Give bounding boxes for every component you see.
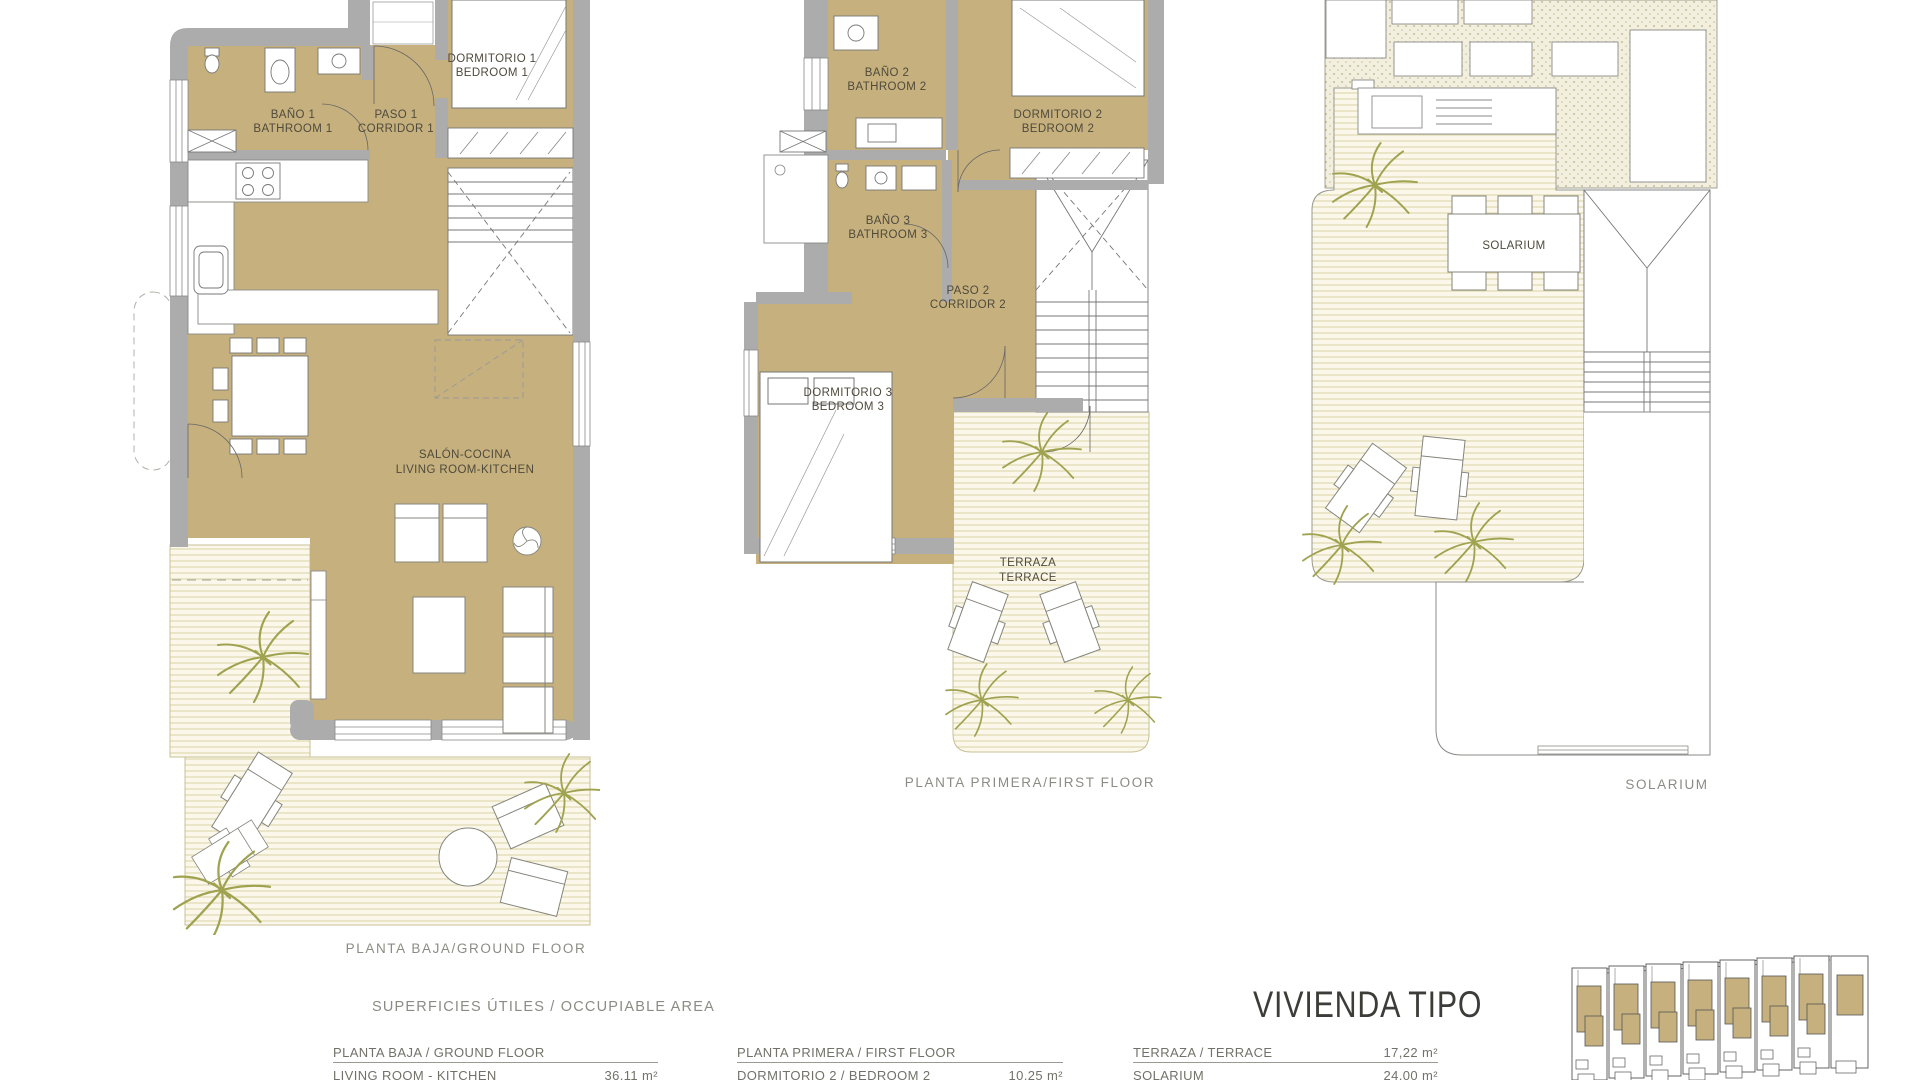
wardrobe [1010,148,1144,178]
area-table-first: PLANTA PRIMERA / FIRST FLOOR DORMITORIO … [737,1040,1063,1080]
table-row: TERRAZA / TERRACE 17,22 m² [1133,1040,1438,1063]
solarium-caption: SOLARIUM [1592,777,1742,792]
solarium-plan: SOLARIUM [1300,0,1730,770]
room-label-bano1: BAÑO 1 [271,108,316,121]
room-label-dormitorio1: DORMITORIO 1 [448,53,537,65]
toilet-icon [205,48,219,73]
room-label-bano2-en: BATHROOM 2 [847,81,926,93]
table-header-row: PLANTA PRIMERA / FIRST FLOOR [737,1040,1063,1063]
entrance-porch [373,2,433,44]
bed-icon [1012,0,1144,96]
area-table-ground: PLANTA BAJA / GROUND FLOOR LIVING ROOM -… [333,1040,658,1080]
room-label-terraza-en: TERRACE [999,572,1057,584]
room-label-terraza: TERRAZA [1000,557,1056,569]
row-label: SOLARIUM [1133,1068,1204,1080]
shower [764,155,828,243]
row-label: DORMITORIO 2 / BEDROOM 2 [737,1068,931,1080]
sink-icon [194,246,228,294]
ground-floor-plan: BAÑO 1 BATHROOM 1 PASO 1 CORRIDOR 1 DORM… [130,0,600,935]
room-label-salon: SALÓN-COCINA [419,448,511,461]
row-value: 17,22 m² [1383,1045,1438,1060]
room-label-dormitorio2: DORMITORIO 2 [1014,109,1103,121]
room-label-paso1: PASO 1 [374,109,417,121]
room-label-dormitorio2-en: BEDROOM 2 [1022,123,1095,135]
tv-unit [311,571,326,699]
stair-treads [1584,352,1710,412]
table-row: SOLARIUM 24,00 m² [1133,1063,1438,1080]
wardrobe [448,128,573,158]
row-value: 24,00 m² [1383,1068,1438,1080]
property-dashed-outline [134,292,172,470]
row-label: LIVING ROOM - KITCHEN [333,1068,497,1080]
table-header: PLANTA BAJA / GROUND FLOOR [333,1045,545,1060]
room-label-paso1-en: CORRIDOR 1 [358,123,434,135]
room-label-solarium: SOLARIUM [1482,240,1545,252]
room-label-paso2-en: CORRIDOR 2 [930,299,1006,311]
room-label-dormitorio3-en: BEDROOM 3 [812,401,885,413]
ground-floor-caption: PLANTA BAJA/GROUND FLOOR [330,941,602,956]
room-label-paso2: PASO 2 [946,285,989,297]
room-label-dormitorio1-en: BEDROOM 1 [456,67,529,79]
row-value: 10,25 m² [1008,1068,1063,1080]
table-row: DORMITORIO 2 / BEDROOM 2 10,25 m² [737,1063,1063,1080]
room-label-bano3-en: BATHROOM 3 [848,229,927,241]
room-label-dormitorio3: DORMITORIO 3 [804,387,893,399]
stairwell [1036,160,1148,412]
table-header: PLANTA PRIMERA / FIRST FLOOR [737,1045,956,1060]
area-table-terrace-solarium: TERRAZA / TERRACE 17,22 m² SOLARIUM 24,0… [1133,1040,1438,1080]
room-label-bano3: BAÑO 3 [866,214,911,227]
row-value: 36,11 m² [604,1068,658,1080]
first-floor-caption: PLANTA PRIMERA/FIRST FLOOR [900,775,1160,790]
occupiable-area-heading: SUPERFICIES ÚTILES / OCCUPIABLE AREA [372,999,715,1015]
first-floor-plan: BAÑO 2 BATHROOM 2 DORMITORIO 2 BEDROOM 2… [740,0,1180,770]
garden-table-icon [439,828,497,886]
room-label-bano1-en: BATHROOM 1 [253,123,332,135]
table-row: LIVING ROOM - KITCHEN 36,11 m² [333,1063,658,1080]
table-header-row: PLANTA BAJA / GROUND FLOOR [333,1040,658,1063]
row-label: TERRAZA / TERRACE [1133,1045,1272,1060]
shaft [188,130,236,152]
roof-hip [1584,190,1710,352]
floorplan-sheet: BAÑO 1 BATHROOM 1 PASO 1 CORRIDOR 1 DORM… [0,0,1920,1080]
room-label-salon-en: LIVING ROOM-KITCHEN [396,464,535,476]
room-label-bano2: BAÑO 2 [865,66,910,79]
toilet-icon [836,164,848,188]
shaft [780,131,826,152]
site-plan-miniature [1570,953,1870,1080]
page-title: VIVIENDA TIPO [1253,984,1482,1026]
ceiling-fan-icon [513,527,541,555]
outdoor-kitchen [1352,80,1556,134]
